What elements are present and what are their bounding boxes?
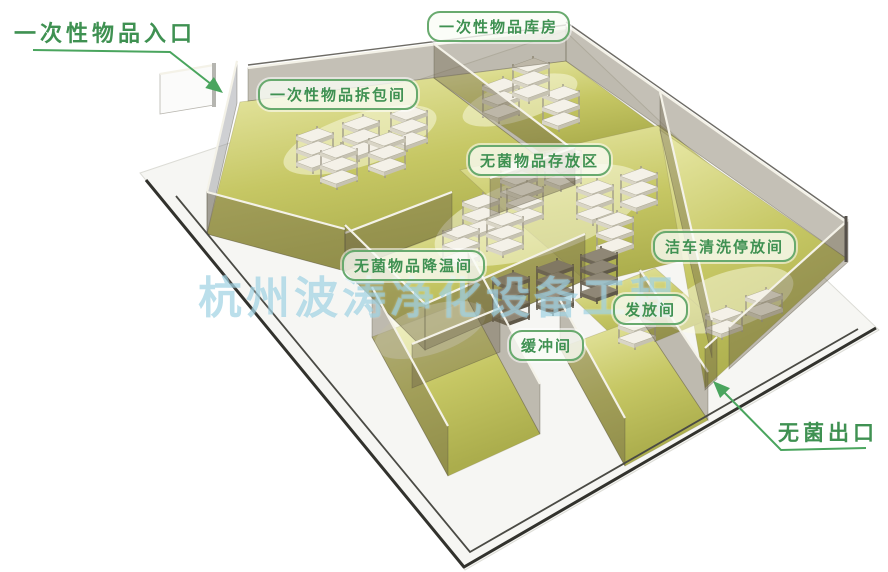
cleanroom-3d-diagram: 杭州波涛净化设备工程 一次性物品入口 无菌出口 一次性物品库房 一次性物品拆包间…	[0, 0, 888, 572]
room-label-cart-wash: 洁车清洗停放间	[653, 231, 796, 262]
room-label-sterile-storage: 无菌物品存放区	[468, 145, 611, 176]
room-label-warehouse: 一次性物品库房	[427, 11, 570, 42]
entrance-callout-label: 一次性物品入口	[14, 16, 196, 48]
room-label-cooling: 无菌物品降温间	[342, 250, 485, 281]
exit-callout-label: 无菌出口	[778, 417, 878, 447]
isometric-scene	[0, 0, 888, 572]
entrance-wall	[160, 65, 214, 114]
room-label-unpacking: 一次性物品拆包间	[258, 79, 418, 110]
room-label-buffer: 缓冲间	[509, 330, 584, 361]
room-label-dispatch: 发放间	[613, 294, 688, 325]
